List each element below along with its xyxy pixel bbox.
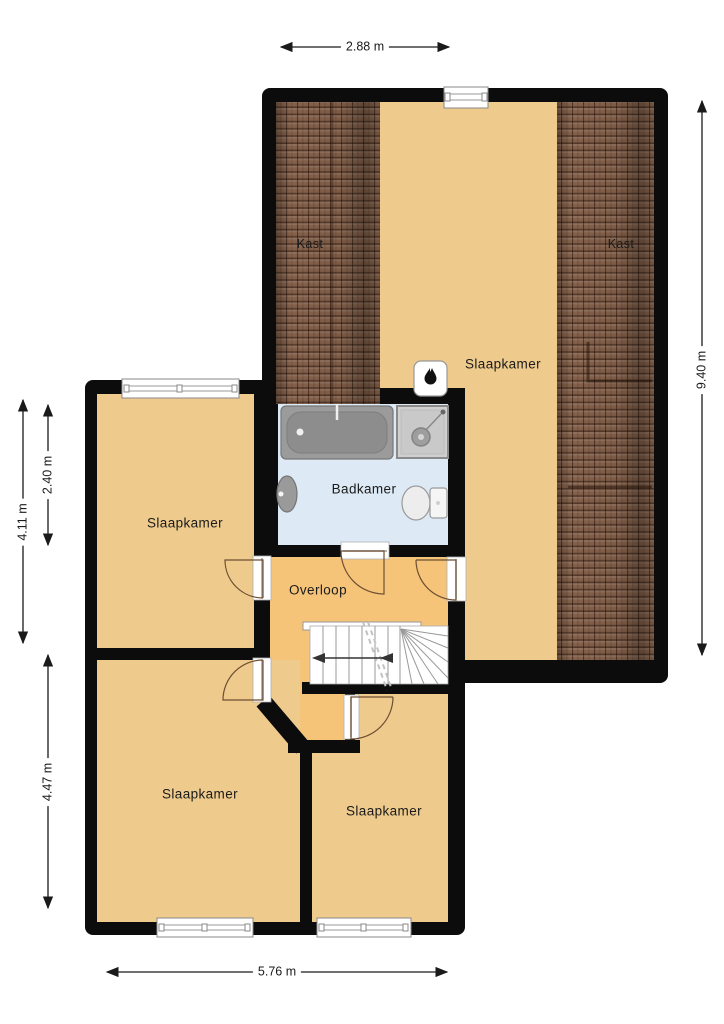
window-bedroom-bottom-right [317,918,411,937]
dimension-bottom: 5.76 m [253,965,301,980]
dimension-left-upper: 4.11 m [16,498,31,545]
window-attic-top [444,87,488,108]
room-label-overloop: Overloop [289,583,347,598]
roof-storage-left [276,102,380,404]
bathtub [281,404,393,459]
room-label-badkamer: Badkamer [332,482,397,497]
room-label-slaapkamer-attic: Slaapkamer [465,357,541,372]
room-label-kast-left: Kast [297,237,324,251]
room-label-slaapkamer-left: Slaapkamer [147,516,223,531]
toilet [402,486,447,520]
dimension-left-inner: 2.40 m [41,451,56,499]
dimension-right: 9.40 m [695,346,710,394]
floor-plan: 2.88 m 9.40 m 4.11 m 2.40 m 4.47 m 5.76 … [0,0,724,1024]
room-label-slaapkamer-bottom-left: Slaapkamer [162,787,238,802]
shower [397,406,448,458]
window-bedroom-bottom-left [157,918,253,937]
floor-plan-drawing [0,0,724,1024]
dimension-left-lower: 4.47 m [41,758,56,806]
roof-storage-right [557,102,654,660]
window-bedroom-left [122,379,239,398]
room-label-slaapkamer-bottom-right: Slaapkamer [346,804,422,819]
staircase [303,622,448,690]
boiler [414,361,447,396]
dimension-top: 2.88 m [341,40,389,55]
sink [277,476,297,512]
room-label-kast-right: Kast [608,237,635,251]
